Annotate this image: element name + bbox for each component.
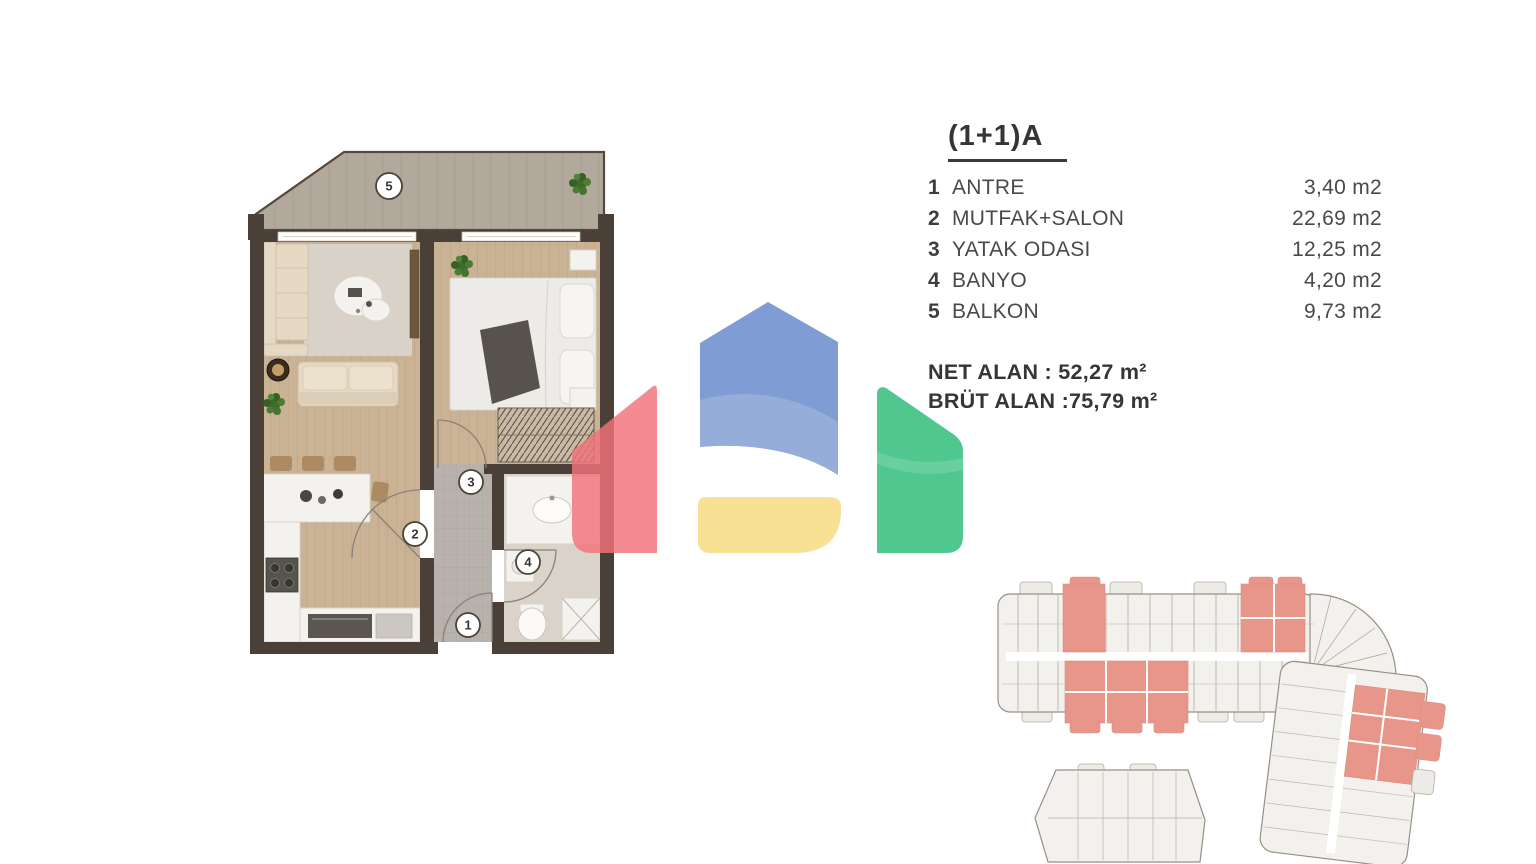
badge-mutfak-salon: 2 [411,527,418,542]
room-number: 2 [928,207,952,231]
room-row: 1 ANTRE 3,40 m2 [928,176,1382,207]
room-area: 4,20 m2 [1304,269,1382,293]
room-name: YATAK ODASI [952,238,1091,262]
room-area: 12,25 m2 [1292,238,1382,262]
room-row: 3 YATAK ODASI 12,25 m2 [928,238,1382,269]
room-number: 3 [928,238,952,262]
badge-banyo: 4 [524,555,532,570]
room-area: 3,40 m2 [1304,176,1382,200]
brut-alan: BRÜT ALAN :75,79 m² [928,387,1158,416]
room-legend: 1 ANTRE 3,40 m2 2 MUTFAK+SALON 22,69 m2 … [928,176,1382,331]
badge-yatak-odasi: 3 [467,475,474,490]
room-name: MUTFAK+SALON [952,207,1124,231]
logo-yellow-shape [698,497,841,553]
room-name: ANTRE [952,176,1025,200]
unit-title: (1+1)A [948,120,1067,162]
room-number: 5 [928,300,952,324]
site-plan [958,572,1533,864]
room-name: BALKON [952,300,1039,324]
room-row: 2 MUTFAK+SALON 22,69 m2 [928,207,1382,238]
badge-balkon: 5 [385,179,392,194]
site-small-building [1035,764,1205,862]
logo [572,300,964,556]
badge-antre: 1 [464,618,471,633]
site-leg-wing [1259,660,1449,864]
room-area: 9,73 m2 [1304,300,1382,324]
balcony-area [256,152,604,230]
room-row: 4 BANYO 4,20 m2 [928,269,1382,300]
room-number: 1 [928,176,952,200]
site-highlight-leg [1344,685,1425,785]
page: 5 3 2 4 1 (1+1)A 1 ANTRE 3,40 m2 2 MUTFA… [0,0,1536,864]
room-area: 22,69 m2 [1292,207,1382,231]
area-summary: NET ALAN : 52,27 m² BRÜT ALAN :75,79 m² [928,358,1158,416]
net-alan: NET ALAN : 52,27 m² [928,358,1158,387]
floor-plan: 5 3 2 4 1 [248,138,616,662]
logo-red-shape [572,386,657,553]
room-number: 4 [928,269,952,293]
room-row: 5 BALKON 9,73 m2 [928,300,1382,331]
room-name: BANYO [952,269,1027,293]
